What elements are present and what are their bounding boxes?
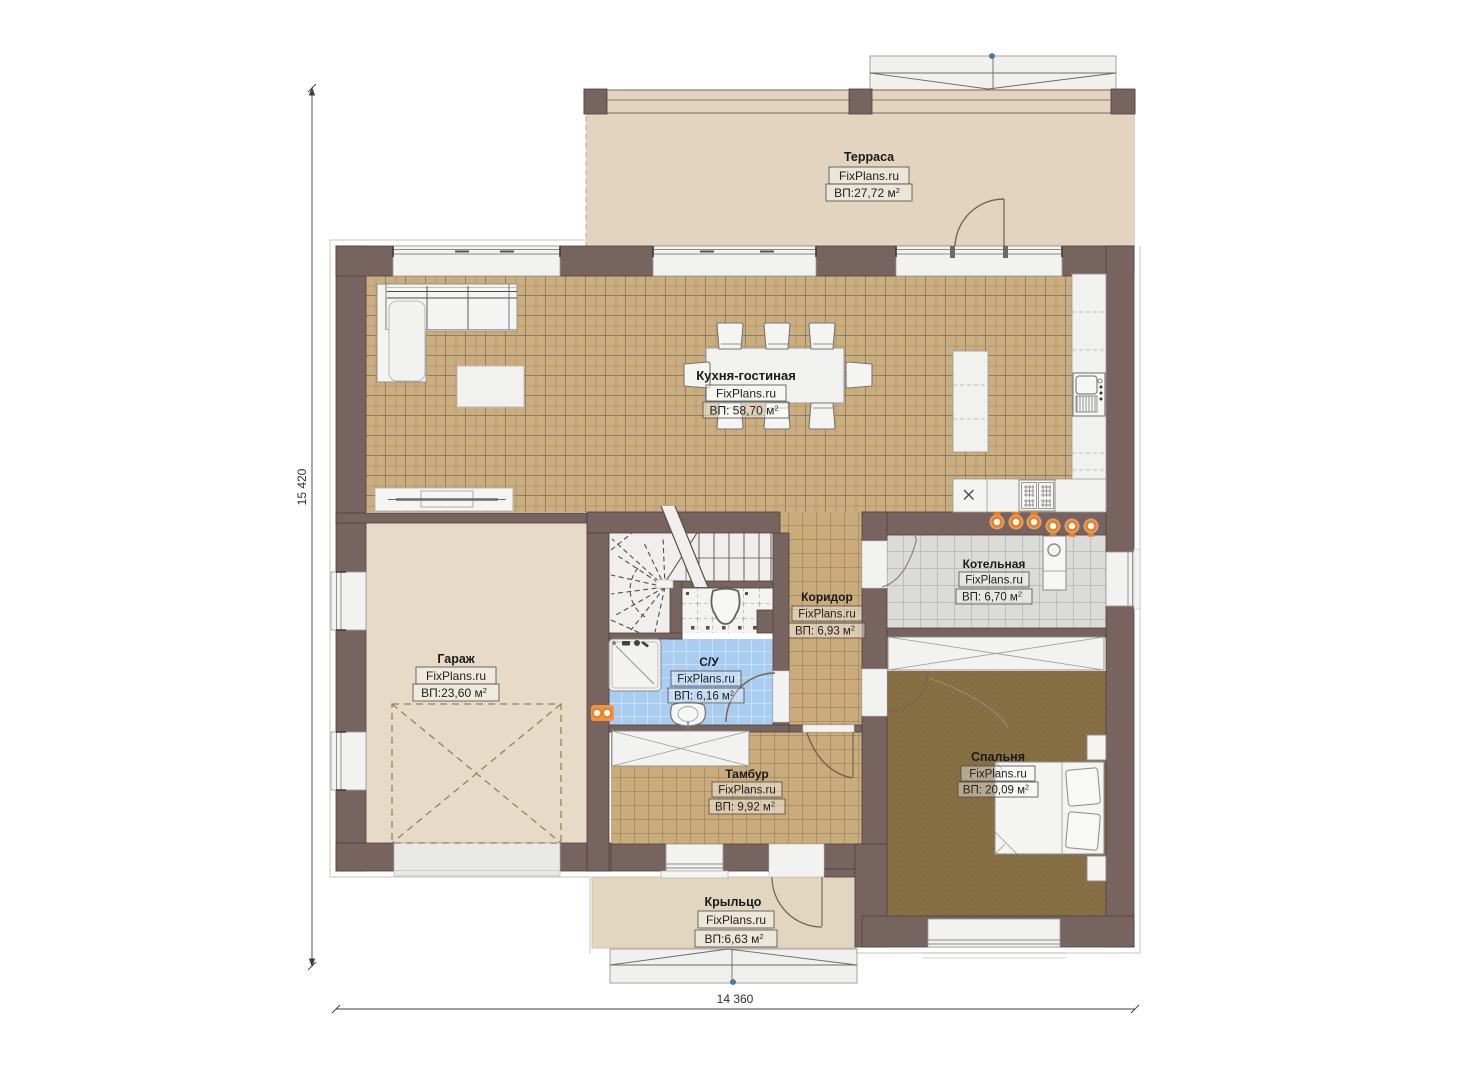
svg-text:Терраса: Терраса [844, 150, 895, 164]
svg-text:ВП:23,60 м2: ВП:23,60 м2 [421, 686, 487, 700]
svg-text:FixPlans.ru: FixPlans.ru [839, 169, 899, 183]
svg-text:FixPlans.ru: FixPlans.ru [969, 769, 1027, 781]
svg-text:Гараж: Гараж [437, 652, 474, 666]
svg-text:14 360: 14 360 [717, 992, 754, 1006]
svg-text:ВП: 9,92 м2: ВП: 9,92 м2 [715, 800, 775, 814]
svg-text:FixPlans.ru: FixPlans.ru [718, 785, 776, 797]
svg-text:FixPlans.ru: FixPlans.ru [716, 387, 776, 401]
svg-text:Тамбур: Тамбур [725, 767, 769, 781]
svg-text:Коридор: Коридор [801, 590, 853, 604]
svg-text:Крыльцо: Крыльцо [705, 895, 762, 909]
svg-text:ВП: 6,16 м2: ВП: 6,16 м2 [674, 689, 734, 703]
svg-text:Кухня-гостиная: Кухня-гостиная [696, 368, 796, 383]
svg-text:Котельная: Котельная [963, 557, 1026, 571]
svg-text:15 420: 15 420 [295, 468, 309, 505]
svg-text:FixPlans.ru: FixPlans.ru [706, 913, 766, 927]
svg-text:ВП:27,72 м2: ВП:27,72 м2 [834, 186, 900, 200]
svg-text:ВП: 6,70 м2: ВП: 6,70 м2 [962, 590, 1022, 604]
svg-text:FixPlans.ru: FixPlans.ru [677, 674, 735, 686]
svg-text:ВП:6,63 м2: ВП:6,63 м2 [704, 932, 763, 946]
svg-text:FixPlans.ru: FixPlans.ru [426, 669, 486, 683]
svg-text:FixPlans.ru: FixPlans.ru [965, 575, 1023, 587]
svg-text:ВП: 58,70 м2: ВП: 58,70 м2 [709, 404, 778, 418]
svg-text:ВП: 20,09 м2: ВП: 20,09 м2 [963, 783, 1029, 797]
svg-text:Спальня: Спальня [971, 750, 1025, 764]
svg-text:FixPlans.ru: FixPlans.ru [798, 609, 856, 621]
svg-text:ВП: 6,93 м2: ВП: 6,93 м2 [795, 624, 855, 638]
svg-text:С/У: С/У [699, 655, 719, 669]
